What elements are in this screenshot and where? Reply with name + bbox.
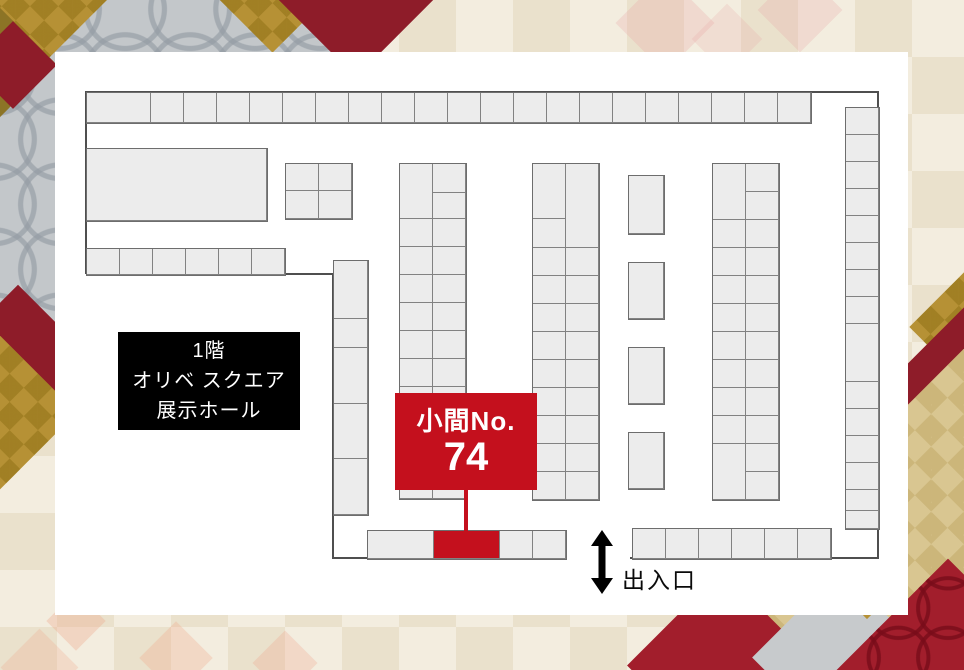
- booth-cell: [500, 531, 533, 559]
- booth-cell: [713, 332, 746, 360]
- booth-cell: [846, 162, 879, 189]
- booth-cell: [514, 93, 547, 123]
- booth-cell: [629, 176, 664, 234]
- booth-cell: [713, 164, 746, 220]
- booth-cell: [846, 270, 879, 297]
- booth-cell: [566, 304, 599, 332]
- booth-cell: [566, 472, 599, 500]
- booth-cell: [87, 249, 120, 275]
- booth-cell: [613, 93, 646, 123]
- booth-cell: [746, 388, 779, 416]
- booth-cell: [713, 444, 746, 500]
- booth-cell: [433, 359, 466, 387]
- booth-cell: [87, 149, 267, 221]
- booth-cell: [533, 360, 566, 388]
- booth-cell: [433, 219, 466, 247]
- floor-label-line-2: オリベ スクエア: [132, 366, 286, 396]
- booth-cell: [400, 275, 433, 303]
- booth-cell: [566, 360, 599, 388]
- booth-cell: [400, 359, 433, 387]
- badge-prefix: 小間No.: [417, 406, 516, 436]
- booth-cell: [566, 164, 599, 248]
- booth-cell: [400, 303, 433, 331]
- booth-cell: [433, 331, 466, 359]
- booth-cell: [746, 192, 779, 220]
- booth-cell: [646, 93, 679, 123]
- booth-cell: [566, 416, 599, 444]
- booth-cell: [778, 93, 811, 123]
- booth-col-c-1: [628, 175, 665, 235]
- booth-cell: [846, 511, 879, 529]
- booth-cell: [746, 248, 779, 276]
- booth-cell: [732, 529, 765, 559]
- booth-cell: [533, 164, 566, 219]
- booth-row-left: [86, 248, 286, 276]
- booth-cell: [433, 303, 466, 331]
- booth-cell: [334, 459, 368, 515]
- booth-grid-2x2: [285, 163, 353, 220]
- booth-cell: [286, 191, 319, 219]
- booth-cell: [846, 463, 879, 490]
- booth-cell: [120, 249, 153, 275]
- booth-cell: [745, 93, 778, 123]
- booth-col-d: [712, 163, 780, 501]
- booth-cell: [250, 93, 283, 123]
- booth-cell: [547, 93, 580, 123]
- booth-cell: [746, 276, 779, 304]
- booth-cell: [153, 249, 186, 275]
- booth-cell: [765, 529, 798, 559]
- booth-cell: [679, 93, 712, 123]
- booth-cell: [746, 360, 779, 388]
- booth-cell: [713, 416, 746, 444]
- booth-cell: [316, 93, 349, 123]
- booth-cell: [334, 261, 368, 319]
- floor-label-line-3: 展示ホール: [157, 396, 262, 426]
- booth-cell: [846, 324, 879, 382]
- booth-large: [86, 148, 268, 222]
- booth-cell: [566, 332, 599, 360]
- booth-cell: [566, 248, 599, 276]
- booth-cell: [533, 276, 566, 304]
- booth-cell: [433, 275, 466, 303]
- booth-cell: [400, 247, 433, 275]
- badge-number: 74: [444, 436, 489, 478]
- booth-74-highlight: [434, 531, 500, 559]
- booth-cell: [846, 243, 879, 270]
- booth-cell: [533, 332, 566, 360]
- booth-cell: [746, 472, 779, 500]
- booth-cell: [533, 304, 566, 332]
- booth-cell: [319, 164, 352, 191]
- booth-cell: [746, 304, 779, 332]
- booth-cell: [533, 248, 566, 276]
- floor-map: 1階 オリベ スクエア 展示ホール 小間No. 74 出入口: [0, 0, 964, 670]
- booth-cell: [334, 404, 368, 459]
- booth-cell: [846, 409, 879, 436]
- booth-cell: [533, 388, 566, 416]
- booth-cell: [433, 164, 466, 193]
- booth-cell: [713, 388, 746, 416]
- booth-cell: [713, 276, 746, 304]
- booth-cell: [798, 529, 831, 559]
- booth-col-left: [333, 260, 369, 516]
- booth-cell: [415, 93, 448, 123]
- booth-cell: [368, 531, 434, 559]
- booth-cell: [283, 93, 316, 123]
- booth-cell: [713, 220, 746, 248]
- booth-cell: [481, 93, 514, 123]
- floor-label: 1階 オリベ スクエア 展示ホール: [118, 332, 300, 430]
- booth-cell: [319, 191, 352, 219]
- booth-cell: [448, 93, 481, 123]
- booth-col-c-3: [628, 347, 665, 405]
- booth-cell: [746, 164, 779, 192]
- entrance: 出入口: [591, 530, 697, 594]
- booth-cell: [433, 193, 466, 219]
- booth-col-b: [532, 163, 600, 501]
- booth-row-top: [86, 92, 812, 124]
- booth-cell: [846, 382, 879, 409]
- booth-cell: [566, 388, 599, 416]
- booth-cell: [629, 263, 664, 319]
- booth-col-c-2: [628, 262, 665, 320]
- booth-cell: [846, 216, 879, 243]
- booth-cell: [334, 348, 368, 404]
- booth-cell: [151, 93, 184, 123]
- booth-cell: [746, 416, 779, 444]
- booth-col-right: [845, 107, 880, 530]
- booth-cell: [566, 444, 599, 472]
- badge-pointer-line: [464, 488, 468, 535]
- booth-cell: [219, 249, 252, 275]
- booth-cell: [629, 433, 664, 489]
- booth-number-badge: 小間No. 74: [395, 393, 537, 490]
- booth-cell: [713, 360, 746, 388]
- floor-label-line-1: 1階: [192, 336, 225, 366]
- booth-cell: [713, 248, 746, 276]
- booth-cell: [580, 93, 613, 123]
- booth-cell: [566, 276, 599, 304]
- booth-cell: [699, 529, 732, 559]
- booth-col-c-4: [628, 432, 665, 490]
- booth-cell: [533, 219, 566, 248]
- entrance-arrow-icon: [591, 530, 613, 594]
- booth-cell: [533, 444, 566, 472]
- booth-cell: [252, 249, 285, 275]
- booth-cell: [184, 93, 217, 123]
- booth-cell: [746, 444, 779, 472]
- booth-cell: [217, 93, 250, 123]
- booth-cell: [400, 219, 433, 247]
- booth-cell: [746, 332, 779, 360]
- booth-cell: [846, 189, 879, 216]
- booth-cell: [713, 304, 746, 332]
- booth-cell: [186, 249, 219, 275]
- booth-cell: [349, 93, 382, 123]
- booth-cell: [746, 220, 779, 248]
- booth-cell: [400, 331, 433, 359]
- booth-cell: [533, 416, 566, 444]
- booth-cell: [846, 108, 879, 135]
- booth-cell: [629, 348, 664, 404]
- booth-cell: [846, 490, 879, 511]
- booth-cell: [533, 472, 566, 500]
- booth-cell: [400, 164, 433, 219]
- booth-cell: [712, 93, 745, 123]
- booth-cell: [382, 93, 415, 123]
- booth-cell: [846, 297, 879, 324]
- booth-cell: [846, 436, 879, 463]
- entrance-label: 出入口: [622, 567, 697, 594]
- booth-cell: [87, 93, 151, 123]
- booth-cell: [334, 319, 368, 348]
- page-background: 1階 オリベ スクエア 展示ホール 小間No. 74 出入口: [0, 0, 964, 670]
- booth-cell: [533, 531, 566, 559]
- booth-cell: [433, 247, 466, 275]
- booth-cell: [286, 164, 319, 191]
- booth-cell: [846, 135, 879, 162]
